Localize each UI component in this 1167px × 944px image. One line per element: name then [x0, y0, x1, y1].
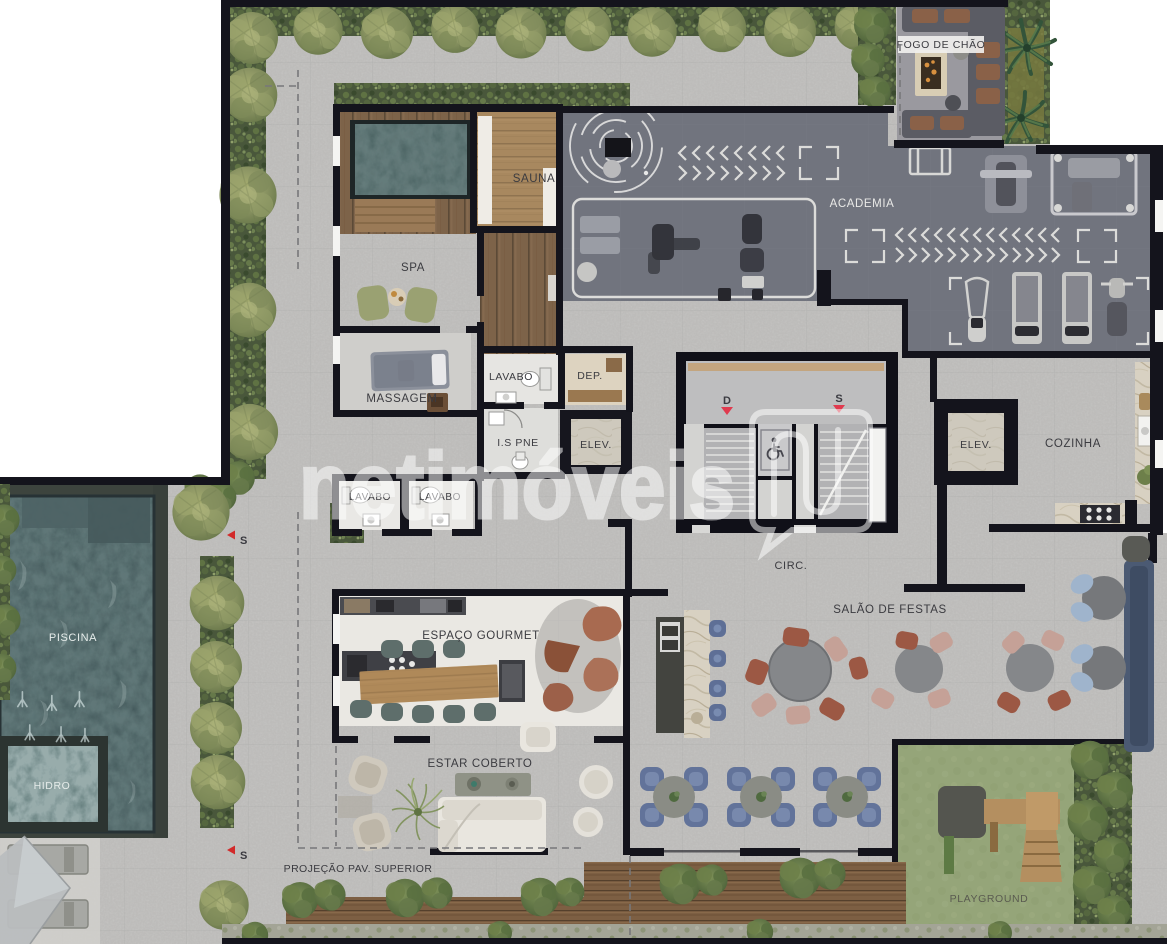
svg-text:COZINHA: COZINHA: [1045, 438, 1101, 450]
svg-text:S: S: [240, 850, 247, 862]
svg-text:DEP.: DEP.: [577, 370, 603, 382]
svg-text:PISCINA: PISCINA: [49, 632, 97, 644]
svg-text:S: S: [240, 535, 247, 547]
svg-text:netimóveis: netimóveis: [299, 433, 735, 538]
svg-text:SALÃO DE FESTAS: SALÃO DE FESTAS: [833, 603, 947, 616]
svg-text:S: S: [835, 393, 842, 405]
svg-text:ELEV.: ELEV.: [960, 439, 992, 451]
svg-text:LAVABO: LAVABO: [489, 371, 533, 383]
svg-text:PROJEÇÃO PAV. SUPERIOR: PROJEÇÃO PAV. SUPERIOR: [284, 862, 433, 875]
svg-text:ESPAÇO GOURMET: ESPAÇO GOURMET: [422, 630, 539, 642]
svg-text:D: D: [723, 395, 731, 407]
svg-text:CIRC.: CIRC.: [775, 560, 808, 572]
svg-text:HIDRO: HIDRO: [34, 780, 71, 792]
svg-text:ACADEMIA: ACADEMIA: [830, 198, 895, 210]
svg-text:MASSAGEM: MASSAGEM: [366, 393, 437, 405]
svg-text:FOGO DE CHÃO: FOGO DE CHÃO: [897, 38, 986, 51]
svg-text:ESTAR COBERTO: ESTAR COBERTO: [428, 758, 533, 770]
svg-text:PLAYGROUND: PLAYGROUND: [950, 893, 1029, 905]
svg-text:SAUNA: SAUNA: [513, 173, 556, 185]
svg-text:SPA: SPA: [401, 262, 425, 274]
